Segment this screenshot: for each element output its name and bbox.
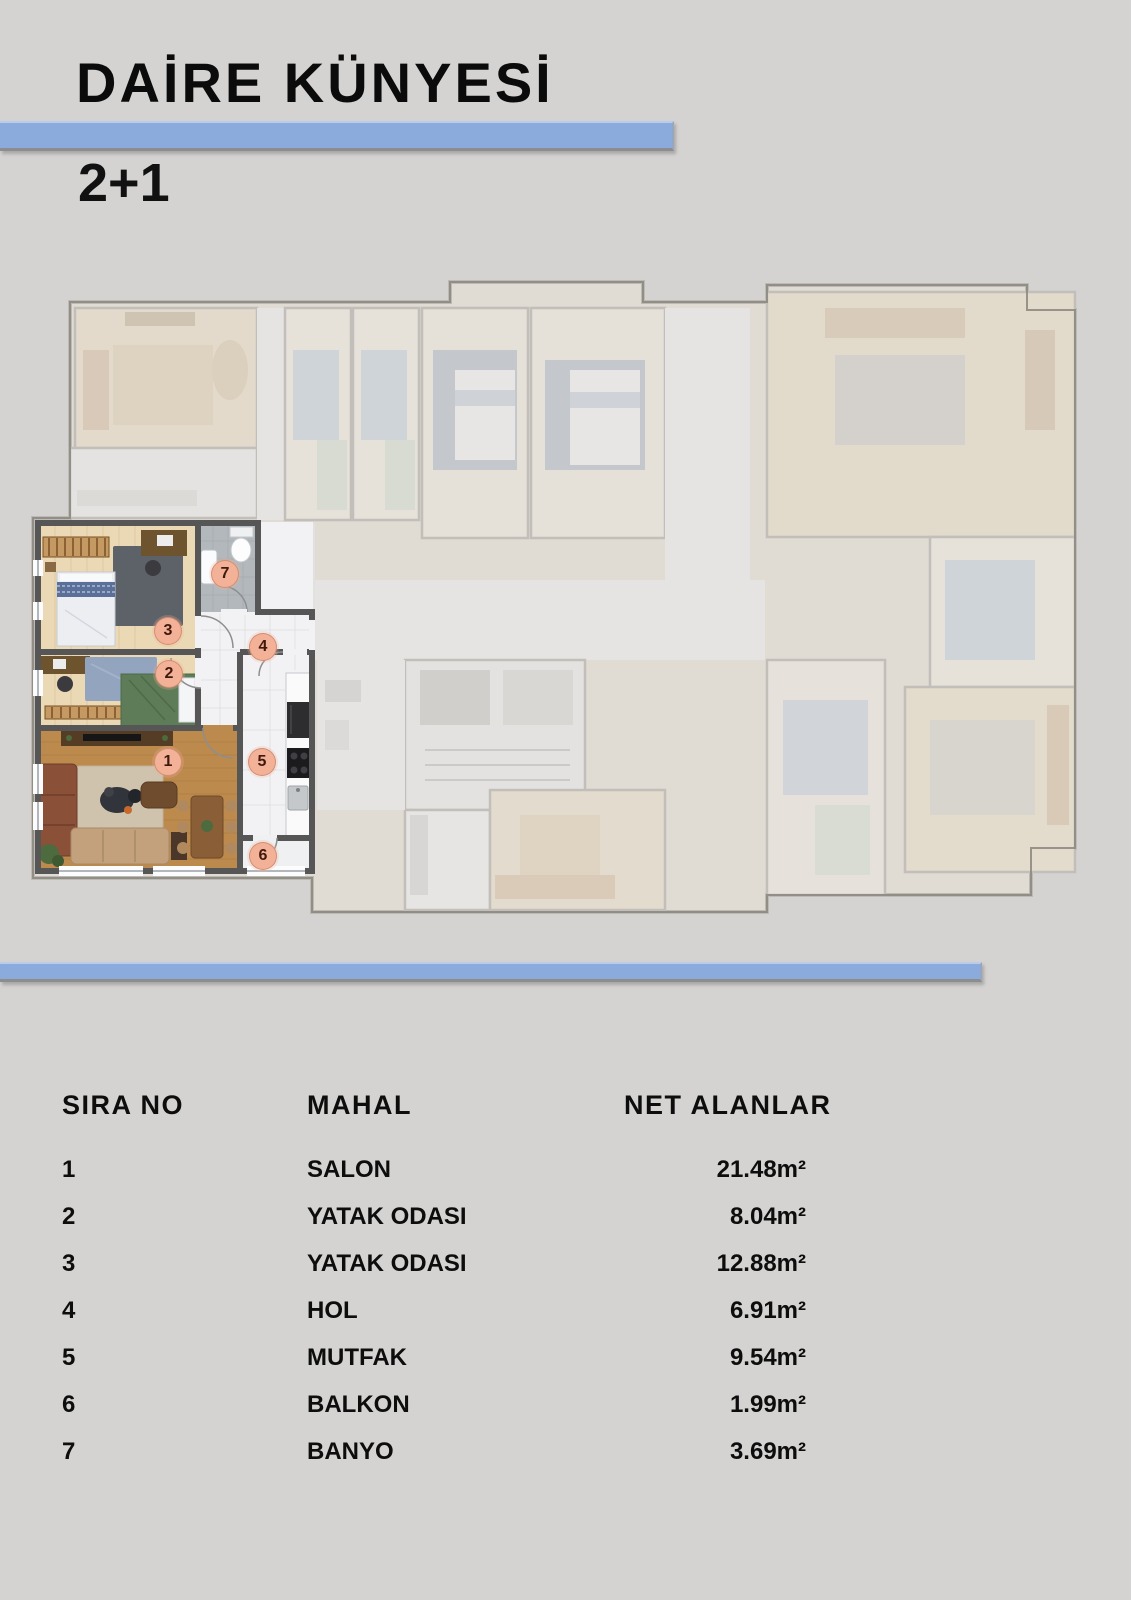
accent-bar-bottom: [0, 962, 982, 982]
radiator: [45, 706, 125, 719]
tv: [83, 734, 141, 741]
chair: [57, 676, 73, 692]
room-marker-hol: 4: [249, 633, 277, 661]
page-title: DAİRE KÜNYESİ: [76, 50, 554, 115]
room-mutfak: [286, 673, 311, 836]
floor-plan: 1 2 3 4 5 6 7: [25, 250, 1081, 932]
room-marker-salon: 1: [154, 748, 182, 776]
table-row: 5 MUTFAK 9.54m²: [62, 1334, 872, 1381]
header-sira-no: SIRA NO: [62, 1090, 307, 1121]
stove: [287, 748, 310, 778]
area-table-rows: 1 SALON 21.48m² 2 YATAK ODASI 8.04m² 3 Y…: [62, 1146, 872, 1475]
table-row: 7 BANYO 3.69m²: [62, 1428, 872, 1475]
room-marker-balkon: 6: [249, 842, 277, 870]
room-marker-banyo: 7: [211, 560, 239, 588]
table-row: 2 YATAK ODASI 8.04m²: [62, 1193, 872, 1240]
radiator: [43, 537, 109, 557]
apartment-type-label: 2+1: [78, 152, 170, 214]
highlighted-apartment: [33, 520, 315, 876]
room-salon: [35, 728, 240, 874]
accent-bar-top: [0, 121, 674, 151]
table-row: 4 HOL 6.91m²: [62, 1287, 872, 1334]
table-row: 6 BALKON 1.99m²: [62, 1381, 872, 1428]
table-row: 3 YATAK ODASI 12.88m²: [62, 1240, 872, 1287]
rug: [113, 546, 183, 626]
toilet: [231, 538, 251, 562]
armchair: [141, 782, 177, 808]
area-table-header: SIRA NO MAHAL NET ALANLAR: [62, 1090, 872, 1121]
sofa-2: [71, 828, 169, 864]
nightstand: [45, 562, 56, 572]
room-marker-yatak-odasi-3: 3: [154, 617, 182, 645]
room-marker-mutfak: 5: [248, 748, 276, 776]
room-marker-yatak-odasi-2: 2: [155, 660, 183, 688]
area-table: SIRA NO MAHAL NET ALANLAR 1 SALON 21.48m…: [62, 1090, 872, 1121]
table-row: 1 SALON 21.48m²: [62, 1146, 872, 1193]
brochure-page: DAİRE KÜNYESİ 2+1: [0, 0, 1131, 1600]
chair: [145, 560, 161, 576]
header-mahal: MAHAL: [307, 1090, 624, 1121]
header-net-alanlar: NET ALANLAR: [624, 1090, 872, 1121]
floor-plan-svg: [25, 250, 1081, 932]
